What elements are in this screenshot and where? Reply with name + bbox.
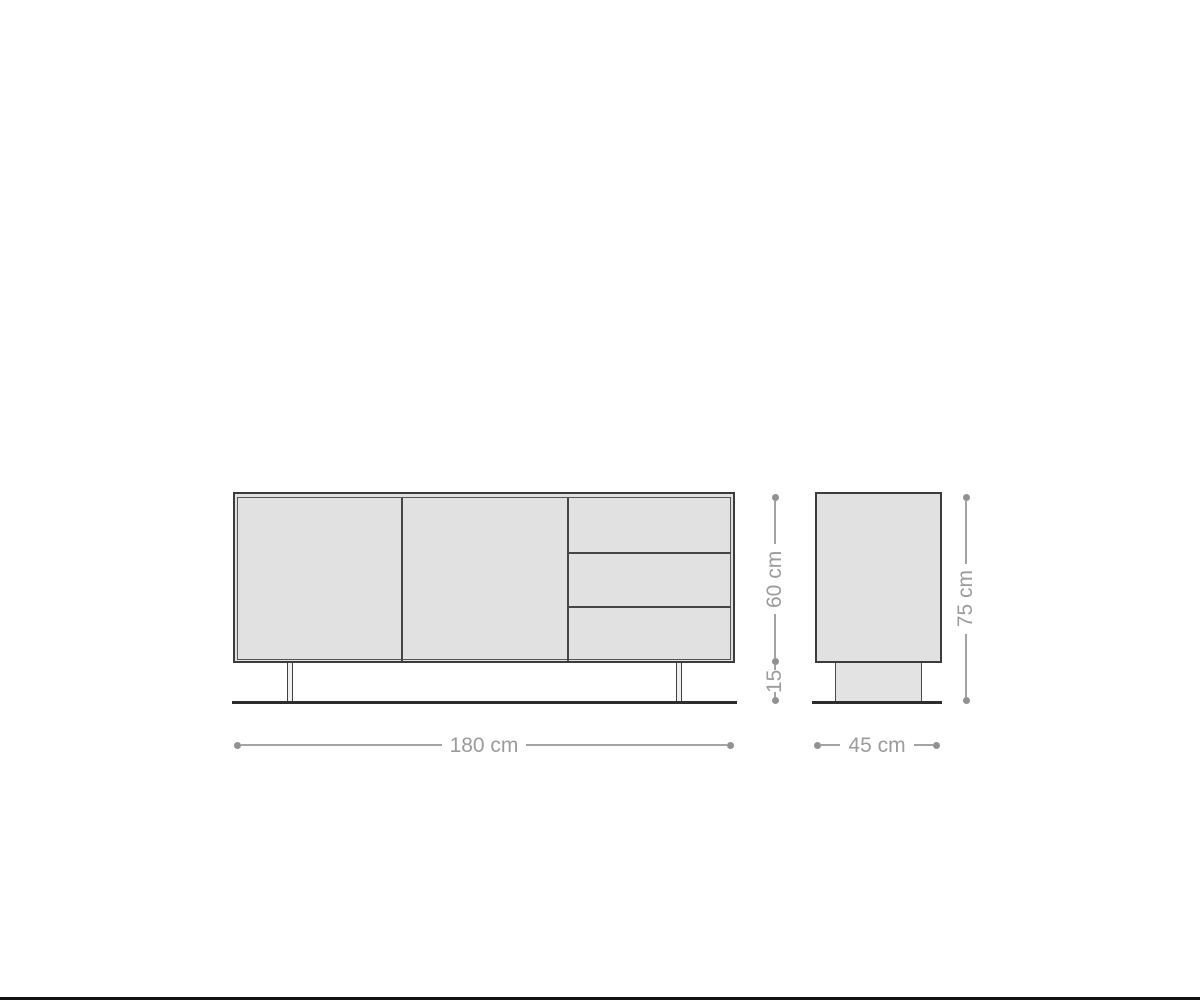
drawer-divider-1 <box>567 552 731 554</box>
dimension-endpoint-dot <box>772 494 779 501</box>
leg-height-dimension-label: 15 <box>763 670 787 692</box>
front-right-leg <box>676 663 682 702</box>
front-left-leg <box>287 663 293 702</box>
width-dimension-label: 180 cm <box>450 735 519 756</box>
body-and-leg-height-dimension: 60 cm 15 <box>766 494 784 704</box>
body-height-dimension-label: 60 cm <box>763 544 787 614</box>
drawer-divider-2 <box>567 606 731 608</box>
dimension-diagram-canvas: 180 cm 45 cm 60 cm 15 75 cm <box>0 0 1200 1000</box>
total-height-dimension: 75 cm <box>957 494 975 704</box>
depth-dimension: 45 cm <box>814 736 940 754</box>
front-ground-line <box>232 701 737 704</box>
dimension-line <box>965 634 967 697</box>
front-view-carcass-frame <box>237 497 731 660</box>
dimension-line <box>774 614 776 658</box>
door-divider-2 <box>567 498 569 661</box>
side-ground-line <box>812 701 942 704</box>
dimension-endpoint-dot <box>772 658 779 665</box>
dimension-endpoint-dot <box>727 742 734 749</box>
dimension-line <box>965 501 967 564</box>
depth-dimension-label: 45 cm <box>848 735 905 756</box>
dimension-endpoint-dot <box>772 697 779 704</box>
total-height-dimension-label: 75 cm <box>954 570 978 627</box>
dimension-line <box>241 744 442 746</box>
dimension-line <box>774 501 776 544</box>
dimension-endpoint-dot <box>933 742 940 749</box>
dimension-line <box>526 744 727 746</box>
dimension-endpoint-dot <box>963 697 970 704</box>
side-view-body <box>815 492 942 663</box>
side-view-plinth <box>835 663 922 702</box>
door-divider-1 <box>401 498 403 661</box>
width-dimension: 180 cm <box>234 736 734 754</box>
dimension-endpoint-dot <box>234 742 241 749</box>
dimension-endpoint-dot <box>814 742 821 749</box>
front-view-body <box>233 492 735 663</box>
dimension-line <box>914 744 933 746</box>
dimension-line <box>821 744 840 746</box>
dimension-endpoint-dot <box>963 494 970 501</box>
